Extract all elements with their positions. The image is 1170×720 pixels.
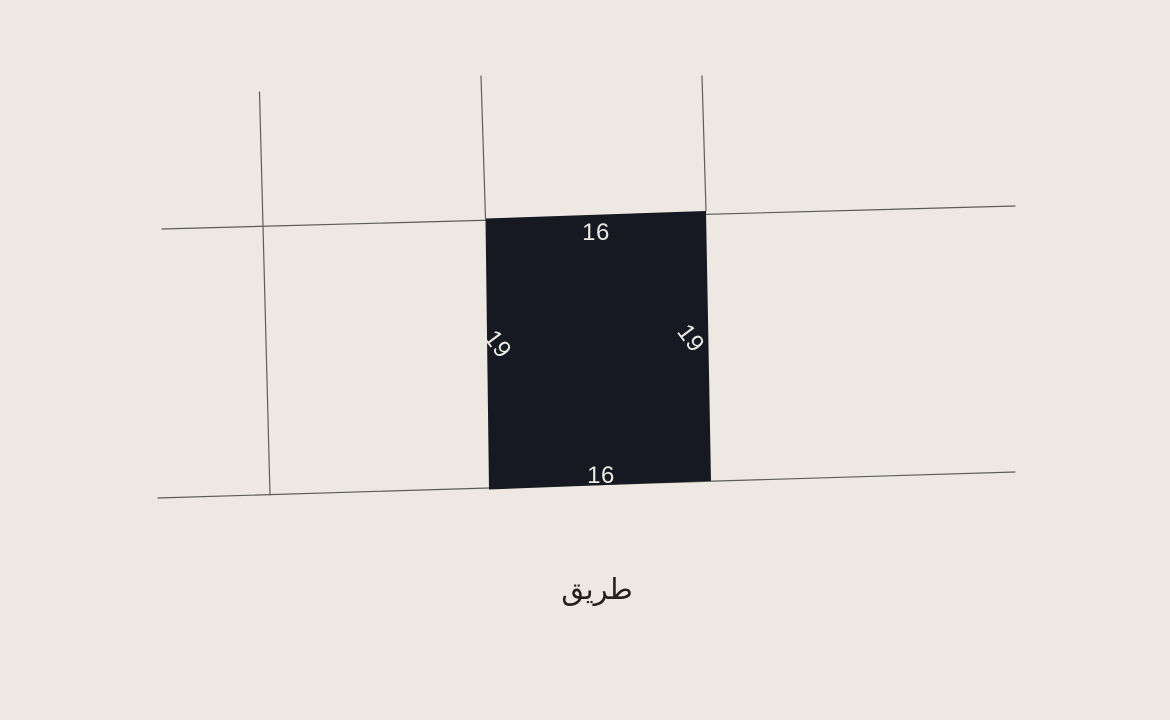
parcel-map-view: 16 16 19 19 طريق — [0, 0, 1170, 720]
road-name-label: طريق — [561, 572, 632, 606]
parcel-dimension-top: 16 — [582, 219, 610, 246]
parcel-dimension-bottom: 16 — [587, 462, 615, 489]
parcel-map-canvas[interactable]: 16 16 19 19 طريق — [0, 0, 1170, 720]
selected-parcel-polygon[interactable] — [486, 211, 712, 490]
